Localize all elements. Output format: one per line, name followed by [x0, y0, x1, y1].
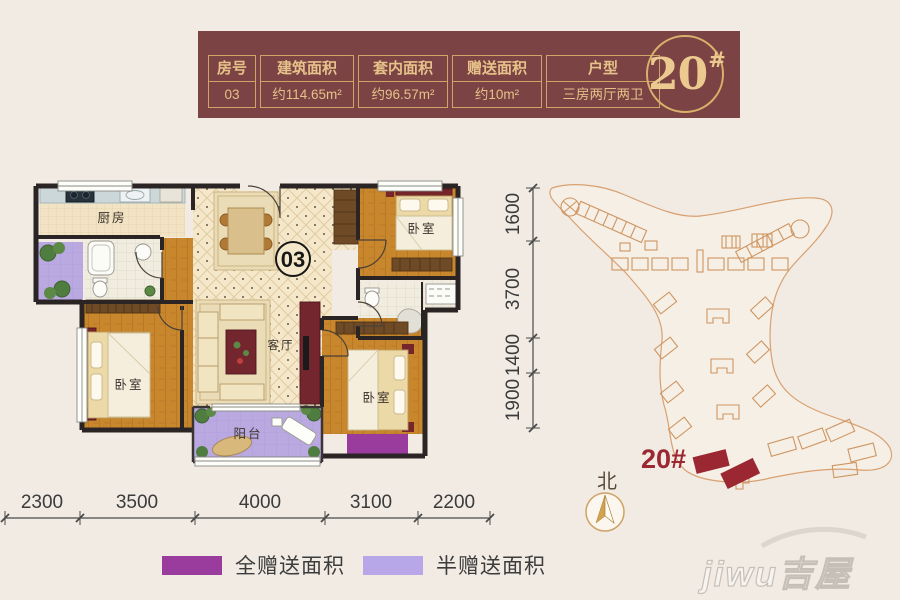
col-layout: 户型 三房两厅两卫 — [546, 55, 660, 108]
building-20-label: 20# — [641, 444, 686, 474]
full-gift-swatch — [162, 556, 222, 575]
unit-number-text: 03 — [281, 247, 305, 272]
room-label-bedroom-top-right: 卧室 — [407, 221, 436, 236]
unit-info-table: 房号 03 建筑面积 约114.65m² 套内面积 约96.57m² 赠送面积 … — [208, 55, 664, 108]
col-value: 约96.57m² — [359, 82, 447, 107]
col-value: 约10m² — [453, 82, 541, 107]
dim-1600: 1600 — [503, 193, 524, 235]
building-number-badge: 20# — [646, 35, 724, 113]
col-value: 约114.65m² — [261, 82, 353, 107]
full-gift-label: 全赠送面积 — [235, 550, 345, 580]
site-watermark: jiwu吉屋 — [702, 546, 852, 597]
dim-1400: 1400 — [503, 334, 524, 376]
site-map: 20# 北 — [550, 185, 892, 546]
col-header: 户型 — [547, 56, 659, 82]
dimensions-bottom: 2300 3500 4000 3100 2200 — [1, 492, 494, 525]
dim-2300: 2300 — [21, 492, 63, 513]
floor-plan: 厨房 卧室 卧室 卧室 客厅 阳台 03 — [36, 181, 463, 466]
dim-2200: 2200 — [433, 492, 475, 513]
col-gift-area: 赠送面积 约10m² — [452, 55, 542, 108]
room-label-balcony: 阳台 — [233, 426, 262, 441]
badge-hash: # — [708, 47, 726, 72]
north-compass: 北 — [586, 470, 624, 531]
badge-number: 20 — [648, 49, 707, 100]
north-label: 北 — [597, 470, 617, 493]
gift-area-legend: 全赠送面积 半赠送面积 — [162, 552, 546, 578]
half-gift-swatch — [363, 556, 423, 575]
dim-3100: 3100 — [350, 492, 392, 513]
dimensions-right: 1600 3700 1400 1900 — [503, 184, 540, 432]
hallway-floor — [162, 238, 193, 302]
col-header: 房号 — [209, 56, 255, 82]
half-gift-label: 半赠送面积 — [436, 550, 546, 580]
room-label-kitchen: 厨房 — [97, 210, 126, 225]
room-label-bedroom-left: 卧室 — [114, 377, 143, 392]
col-header: 赠送面积 — [453, 56, 541, 82]
col-value: 三房两厅两卫 — [547, 82, 659, 107]
col-value: 03 — [209, 82, 255, 107]
col-inner-area: 套内面积 约96.57m² — [358, 55, 448, 108]
col-room-no: 房号 03 — [208, 55, 256, 108]
room-label-living: 客厅 — [268, 338, 295, 352]
dim-3700: 3700 — [503, 268, 524, 310]
unit-number-circle: 03 — [276, 242, 310, 276]
dim-3500: 3500 — [116, 492, 158, 513]
full-gift-strip — [347, 434, 408, 455]
info-table-band: 房号 03 建筑面积 约114.65m² 套内面积 约96.57m² 赠送面积 … — [198, 31, 740, 118]
dim-4000: 4000 — [239, 492, 281, 513]
col-build-area: 建筑面积 约114.65m² — [260, 55, 354, 108]
floorplan-page: 厨房 卧室 卧室 卧室 客厅 阳台 03 2300 3500 — [0, 0, 900, 600]
watermark-ribbon-decoration — [762, 529, 866, 546]
room-label-bedroom-bottom-right: 卧室 — [362, 390, 391, 405]
col-header: 套内面积 — [359, 56, 447, 82]
col-header: 建筑面积 — [261, 56, 353, 82]
dim-1900: 1900 — [503, 379, 524, 421]
